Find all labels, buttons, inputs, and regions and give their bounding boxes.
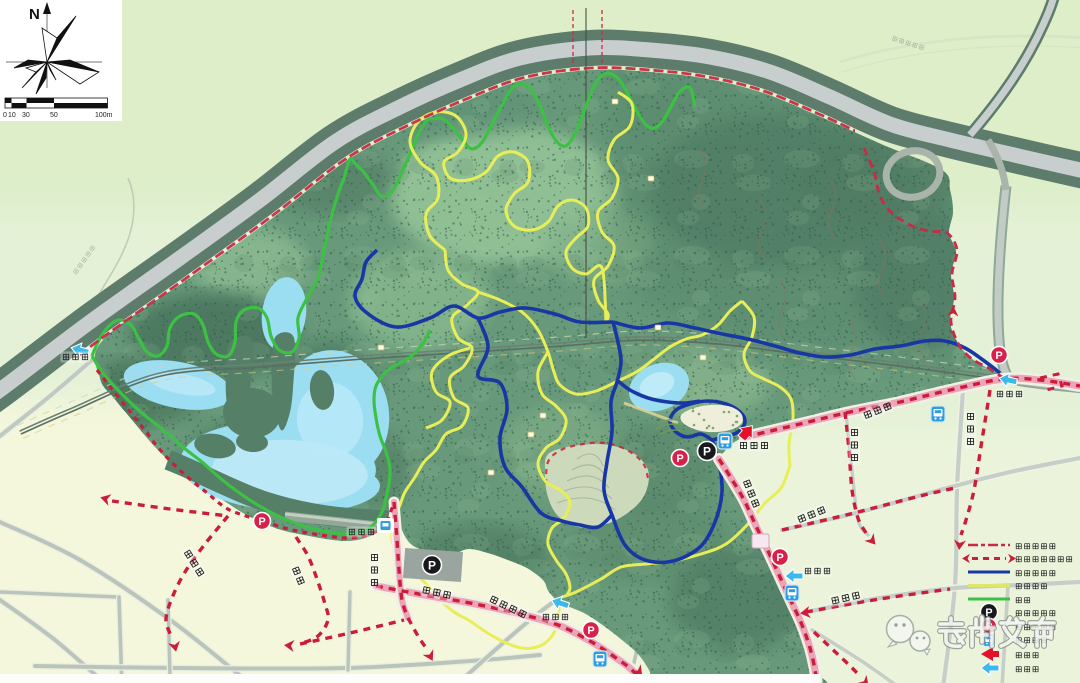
svg-text:30: 30: [22, 112, 30, 119]
svg-text:50: 50: [50, 112, 58, 119]
svg-text:N: N: [29, 6, 40, 23]
svg-text:100m: 100m: [95, 112, 113, 119]
svg-text:0: 0: [3, 112, 7, 119]
svg-text:10: 10: [8, 112, 16, 119]
